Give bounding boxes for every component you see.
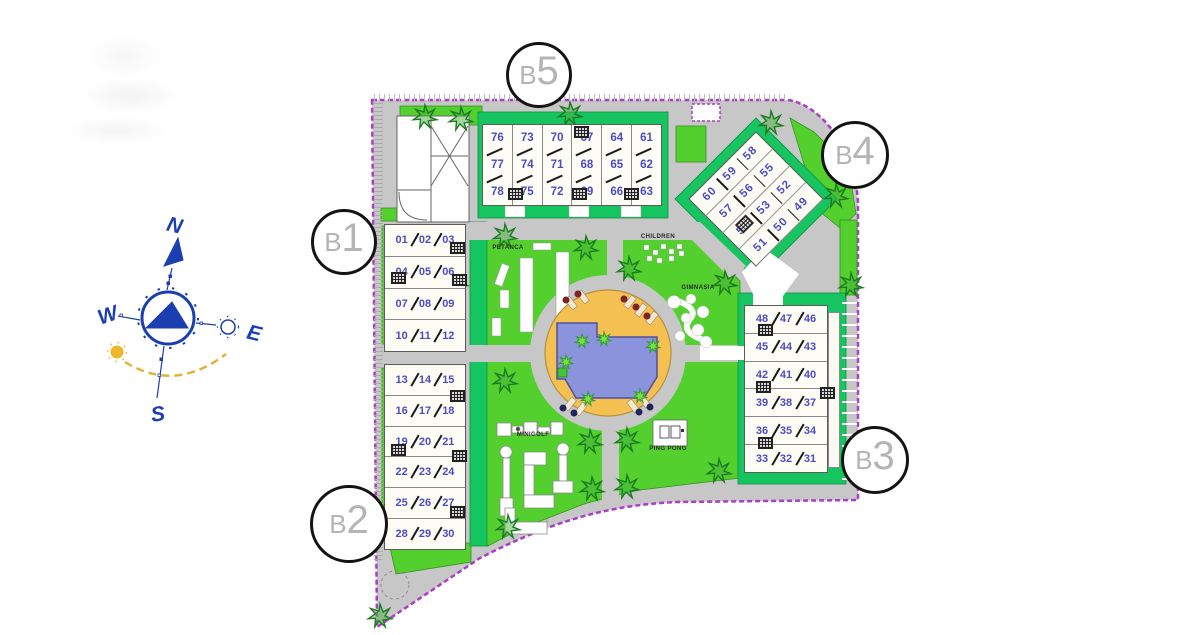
unit-number: 09 (437, 298, 460, 310)
unit-number: 10 (390, 330, 413, 342)
unit-number: 15 (437, 374, 460, 386)
unit-row: 454443 (745, 334, 827, 362)
sun-path-arc (125, 354, 226, 376)
unit-number: 05 (413, 266, 436, 278)
boundary-hatch-left (374, 102, 383, 560)
unit-number: 35 (774, 425, 798, 437)
unit-number: 33 (750, 453, 774, 465)
unit-number: 62 (632, 152, 661, 179)
stair-icon (450, 390, 465, 402)
stair-icon (624, 188, 639, 200)
stair-icon (391, 444, 406, 456)
ping-pong-table (653, 420, 687, 446)
block-marker-b1: B1 (311, 209, 377, 275)
unit-number: 65 (602, 152, 631, 179)
unit-number: 42 (750, 369, 774, 381)
unit-number: 25 (390, 497, 413, 509)
unit-number: 14 (413, 374, 436, 386)
block-marker-letter: B (324, 229, 341, 255)
unit-number: 47 (774, 313, 798, 325)
stair-icon (572, 188, 587, 200)
unit-number: 38 (774, 397, 798, 409)
block-marker-letter: B (329, 511, 346, 537)
unit-number: 07 (390, 298, 413, 310)
unit-row: 070809 (385, 289, 465, 321)
utility-plot (692, 104, 720, 121)
unit-row: 222324 (385, 457, 465, 488)
unit-number: 45 (750, 341, 774, 353)
unit-number: 18 (437, 405, 460, 417)
unit-number: 13 (390, 374, 413, 386)
unit-number: 70 (543, 125, 572, 152)
unit-number: 17 (413, 405, 436, 417)
unit-row: 282930 (385, 519, 465, 549)
block-marker-b2: B2 (310, 485, 388, 563)
unit-number: 22 (390, 466, 413, 478)
stair-icon (756, 381, 771, 393)
unit-number: 28 (390, 528, 413, 540)
unit-row: 101112 (385, 320, 465, 351)
unit-number: 46 (798, 313, 822, 325)
unit-column: 707172 (543, 125, 573, 205)
stair-icon (450, 242, 465, 254)
sun-outline-icon (221, 320, 235, 334)
unit-number: 12 (437, 330, 460, 342)
unit-number: 71 (543, 152, 572, 179)
block-marker-number: 1 (342, 218, 364, 258)
block-marker-letter: B (835, 142, 852, 168)
stair-icon (391, 272, 406, 284)
unit-number: 72 (543, 178, 572, 205)
block-marker-number: 3 (873, 436, 895, 476)
unit-number: 41 (774, 369, 798, 381)
unit-number: 24 (437, 466, 460, 478)
compass-west-label: W (95, 301, 123, 330)
compass-rose: N W E S (80, 210, 265, 425)
block-marker-number: 2 (347, 500, 369, 540)
unit-number: 77 (483, 152, 512, 179)
sun-icon (108, 343, 127, 362)
stair-icon (452, 274, 467, 286)
stair-icon (820, 387, 835, 399)
unit-number: 39 (750, 397, 774, 409)
unit-number: 08 (413, 298, 436, 310)
stair-icon (450, 506, 465, 518)
unit-row: 393837 (745, 389, 827, 417)
unit-number: 29 (413, 528, 436, 540)
boundary-hatch-top (374, 94, 788, 101)
block-marker-number: 5 (537, 51, 559, 91)
unit-row: 333231 (745, 445, 827, 472)
unit-number: 26 (413, 497, 436, 509)
block-marker-number: 4 (853, 131, 875, 171)
unit-number: 21 (437, 436, 460, 448)
unit-number: 74 (513, 152, 542, 179)
unit-number: 76 (483, 125, 512, 152)
amenity-label-ping-pong: PING PONG (644, 446, 692, 452)
unit-number: 68 (572, 152, 601, 179)
compass-south-label: S (149, 402, 166, 425)
unit-number: 01 (390, 234, 413, 246)
unit-number: 34 (798, 425, 822, 437)
stair-icon (574, 126, 589, 138)
amenity-label-children: CHILDREN (634, 234, 682, 240)
unit-number: 31 (798, 453, 822, 465)
unit-number: 02 (413, 234, 436, 246)
compass-north-label: N (164, 213, 185, 239)
stair-icon (758, 324, 773, 336)
block-marker-b3: B3 (841, 426, 909, 494)
amenity-label-petanca: PETANCA (486, 245, 530, 251)
unit-number: 36 (750, 425, 774, 437)
compass-east-label: E (245, 321, 265, 347)
parking-ramp-structure (397, 116, 469, 222)
unit-number: 40 (798, 369, 822, 381)
block-marker-letter: B (519, 62, 536, 88)
unit-number: 30 (437, 528, 460, 540)
unit-number: 16 (390, 405, 413, 417)
block-marker-letter: B (855, 447, 872, 473)
unit-number: 23 (413, 466, 436, 478)
unit-number: 64 (602, 125, 631, 152)
unit-number: 43 (798, 341, 822, 353)
block-marker-b4: B4 (821, 121, 889, 189)
compass-north-arrow (164, 238, 183, 266)
amenity-label-gymnasium: GIMNASIA (674, 285, 722, 291)
compass-needle (146, 302, 188, 328)
unit-number: 20 (413, 436, 436, 448)
stair-icon (452, 450, 467, 462)
unit-number: 32 (774, 453, 798, 465)
stair-icon (508, 188, 523, 200)
amenity-label-minigolf: MINIGOLF (509, 432, 557, 438)
unit-number: 61 (632, 125, 661, 152)
unit-number: 37 (798, 397, 822, 409)
stair-icon (758, 437, 773, 449)
unit-number: 44 (774, 341, 798, 353)
unit-number: 11 (413, 330, 436, 342)
unit-number: 73 (513, 125, 542, 152)
block-marker-b5: B5 (506, 42, 572, 108)
